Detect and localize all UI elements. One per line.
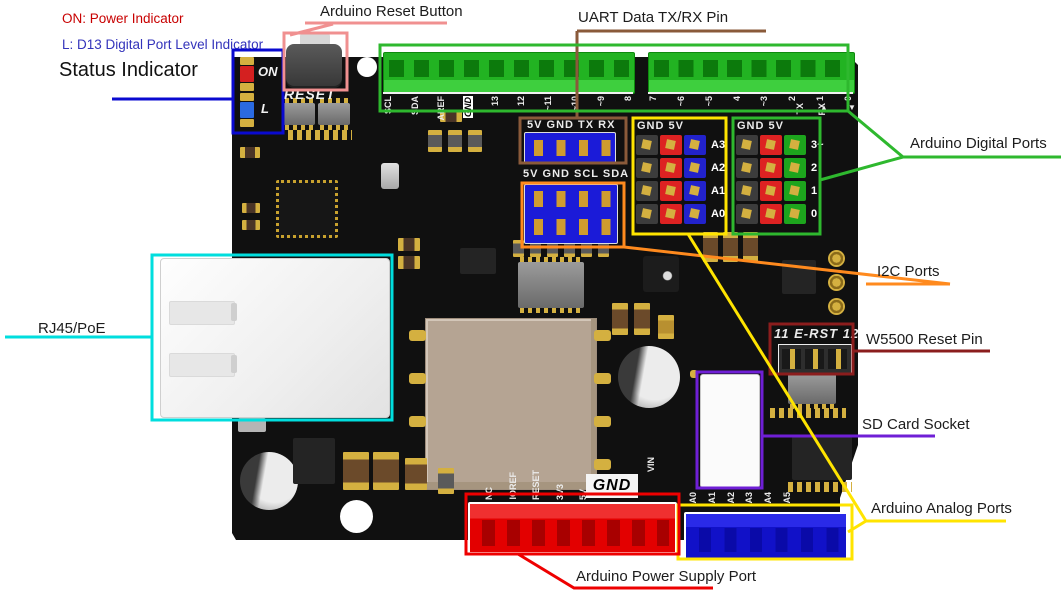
- component-pvb: [612, 303, 628, 335]
- led-pad: [240, 119, 254, 127]
- digital-port-block: GND 5V 3~ 2 1: [736, 120, 826, 232]
- power-pin: [660, 204, 682, 224]
- pin0-rx-arrow-icon: ▼: [848, 103, 856, 112]
- power-pin: [760, 181, 782, 201]
- digital-port-rows: 3~ 2 1 0: [736, 134, 826, 225]
- pin-label: IOREF: [508, 472, 518, 500]
- gnd-pin: [636, 135, 658, 155]
- rj45-jack: [160, 258, 390, 418]
- pin-label: A3: [744, 492, 754, 504]
- power-supply-header: [468, 502, 677, 554]
- signal-pin: [684, 135, 706, 155]
- vin-silkscreen: VIN: [646, 457, 656, 472]
- reset-silkscreen: RESET: [284, 86, 336, 102]
- signal-pin: [784, 181, 806, 201]
- analog-header: [684, 512, 848, 560]
- gnd-pin: [636, 204, 658, 224]
- power-pin: [760, 135, 782, 155]
- component-pvb: [723, 232, 738, 262]
- port-row: A1: [636, 180, 726, 202]
- pin-label: GND: [463, 96, 473, 118]
- component-dark: [782, 260, 816, 294]
- port-row: 1: [736, 180, 826, 202]
- l-silkscreen: L: [261, 101, 269, 116]
- uart-header-silkscreen: 5V GND TX RX: [527, 119, 615, 131]
- component-padrow: [288, 130, 352, 140]
- i2c-header-silkscreen: 5V GND SCL SDA: [523, 168, 629, 180]
- i2c-header-pads: [528, 191, 614, 207]
- component-chip: [788, 374, 836, 404]
- rj45-slot: [231, 303, 237, 321]
- component-dark: [293, 438, 335, 484]
- rj45-led-window: [169, 301, 235, 325]
- pin-label: 1: [815, 96, 825, 101]
- component-gold: [690, 370, 698, 378]
- component-gold: [409, 373, 426, 384]
- label-reset-button: Arduino Reset Button: [320, 3, 463, 20]
- signal-pin: [684, 158, 706, 178]
- label-i2c-ports: I2C Ports: [877, 263, 940, 280]
- pin-label: NC: [484, 487, 494, 500]
- component-chip: [283, 103, 315, 125]
- port-row: 3~: [736, 134, 826, 156]
- pin-label: ~5: [704, 96, 714, 106]
- gnd-pin: [736, 158, 758, 178]
- signal-pin: [684, 204, 706, 224]
- gnd-pin: [636, 181, 658, 201]
- component-hole: [340, 500, 373, 533]
- component-gold: [594, 373, 611, 384]
- erst-silkscreen: 11 E-RST 12: [774, 326, 859, 341]
- pin-label: AREF: [436, 96, 446, 121]
- terminal-slots: [654, 60, 849, 77]
- power-pin: [760, 204, 782, 224]
- port-row-label: A0: [711, 208, 725, 220]
- component-padrow: [770, 408, 846, 418]
- component-pvb: [743, 232, 758, 262]
- pin-label: 8: [623, 96, 633, 101]
- signal-pin: [784, 204, 806, 224]
- port-row: A2: [636, 157, 726, 179]
- label-status-indicator: Status Indicator: [59, 59, 198, 82]
- uart-header: [524, 132, 616, 164]
- label-d13-indicator: L: D13 Digital Port Level Indicator: [62, 37, 263, 52]
- component-pv: [513, 240, 524, 257]
- digital-terminal-strip-left: [383, 52, 635, 94]
- power-pin: [660, 135, 682, 155]
- power-pin: [660, 181, 682, 201]
- component-silver: [381, 163, 399, 189]
- component-ph: [242, 220, 260, 230]
- component-pv: [448, 130, 462, 152]
- pin-label: A2: [726, 492, 736, 504]
- component-pv: [468, 130, 482, 152]
- analog-port-block: GND 5V A3 A2 A1: [636, 120, 726, 232]
- rj45-leg: [238, 418, 266, 432]
- pin-label: 7: [648, 96, 658, 101]
- pin-label: 4: [732, 96, 742, 101]
- label-power-supply: Arduino Power Supply Port: [576, 568, 756, 585]
- label-sd-socket: SD Card Socket: [862, 416, 970, 433]
- power-pin-labels: NCIOREFRESET3V35V: [484, 448, 588, 500]
- rj45-led-window: [169, 353, 235, 377]
- power-pin: [760, 158, 782, 178]
- port-row: 2: [736, 157, 826, 179]
- pin-label: ~6: [676, 96, 686, 106]
- component-pvb: [703, 232, 718, 262]
- reset-button[interactable]: [286, 44, 342, 86]
- component-chip: [318, 103, 350, 125]
- label-w5500-reset: W5500 Reset Pin: [866, 331, 983, 348]
- i2c-header-pads: [528, 219, 614, 235]
- gnd-pin: [736, 204, 758, 224]
- component-ecap: [240, 452, 298, 510]
- pin-label: A4: [763, 492, 773, 504]
- pin-label: 2: [787, 96, 797, 101]
- signal-pin: [684, 181, 706, 201]
- pin-label: ~9: [596, 96, 606, 106]
- component-gold: [594, 330, 611, 341]
- component-gold: [409, 416, 426, 427]
- uart-header-pads: [528, 140, 612, 156]
- component-ecap: [618, 346, 680, 408]
- port-row-label: 3~: [811, 139, 824, 151]
- component-dark: [792, 436, 852, 480]
- rx-silkscreen: RX: [817, 103, 827, 116]
- pin-label: 3V3: [555, 484, 565, 500]
- gnd-pin: [636, 158, 658, 178]
- signal-pin: [784, 135, 806, 155]
- component-round: [828, 298, 845, 315]
- component-dark: [460, 248, 496, 274]
- component-chip: [518, 262, 584, 308]
- component-ph: [240, 147, 260, 158]
- port-row-label: 1: [811, 185, 817, 197]
- port-block-header: GND 5V: [737, 120, 826, 132]
- power-pin: [660, 158, 682, 178]
- led-pad: [240, 57, 254, 65]
- pin-label: A0: [688, 492, 698, 504]
- pin-label: A1: [707, 492, 717, 504]
- gnd-pin: [736, 135, 758, 155]
- component-pv: [428, 130, 442, 152]
- pin-label: ~11: [543, 96, 553, 111]
- pin-label: ~10: [570, 96, 580, 111]
- analog-pin-labels: A0A1A2A3A4A5: [688, 470, 792, 504]
- port-row-label: A3: [711, 139, 725, 151]
- led-pad: [240, 93, 254, 101]
- port-row: A0: [636, 203, 726, 225]
- component-padrow: [788, 482, 852, 492]
- label-digital-ports: Arduino Digital Ports: [910, 135, 1047, 152]
- component-pvb: [405, 458, 427, 490]
- component-ph: [242, 203, 260, 213]
- port-row-label: 0: [811, 208, 817, 220]
- port-row: A3: [636, 134, 726, 156]
- port-row-label: A1: [711, 185, 725, 197]
- port-row-label: 2: [811, 162, 817, 174]
- component-darkdot: [643, 256, 679, 292]
- power-header-slots: [476, 520, 669, 546]
- port-block-header: GND 5V: [637, 120, 726, 132]
- shield-annotated-diagram: SCLSDAAREFGND1312~11~10~98 7~6~54~3210 ▲…: [0, 0, 1061, 599]
- component-ph: [398, 256, 420, 269]
- component-pv: [438, 468, 454, 494]
- analog-header-slots: [692, 528, 840, 552]
- terminal-slots: [389, 60, 629, 77]
- component-round: [828, 250, 845, 267]
- label-analog-ports: Arduino Analog Ports: [871, 500, 1012, 517]
- pin-label: A5: [782, 492, 792, 504]
- port-row-label: A2: [711, 162, 725, 174]
- pin-label: RESET: [531, 470, 541, 500]
- led-pad: [240, 83, 254, 91]
- component-gold: [409, 330, 426, 341]
- pin-label: SDA: [410, 96, 420, 115]
- component-pvg: [658, 315, 674, 339]
- component-ph: [398, 238, 420, 251]
- pin-label: 0: [843, 96, 853, 101]
- component-hole: [357, 57, 377, 77]
- w5500-reset-header: [778, 344, 852, 374]
- digital-terminal-strip-right: [648, 52, 855, 94]
- pin-label: ~3: [759, 96, 769, 106]
- power-led: [240, 66, 254, 82]
- label-power-indicator: ON: Power Indicator: [62, 11, 184, 26]
- signal-pin: [784, 158, 806, 178]
- gnd-silkscreen: GND: [586, 474, 638, 498]
- d13-led: [240, 102, 254, 118]
- component-gold: [594, 416, 611, 427]
- rj45-slot: [231, 355, 237, 373]
- component-qfp: [276, 180, 338, 238]
- gnd-pin: [736, 181, 758, 201]
- component-round: [828, 274, 845, 291]
- pin-label: 13: [490, 96, 500, 106]
- label-rj45: RJ45/PoE: [38, 320, 106, 337]
- pin-label: SCL: [383, 96, 393, 114]
- tx-silkscreen: TX: [795, 103, 805, 115]
- port-row: 0: [736, 203, 826, 225]
- component-pvb: [634, 303, 650, 335]
- component-gold: [594, 459, 611, 470]
- component-pvb: [343, 452, 369, 490]
- label-uart: UART Data TX/RX Pin: [578, 9, 728, 26]
- component-pvb: [373, 452, 399, 490]
- analog-port-rows: A3 A2 A1 A0: [636, 134, 726, 225]
- pin-label: 12: [516, 96, 526, 106]
- i2c-header: [524, 184, 618, 244]
- erst-pins: [782, 349, 848, 369]
- on-silkscreen: ON: [258, 64, 278, 79]
